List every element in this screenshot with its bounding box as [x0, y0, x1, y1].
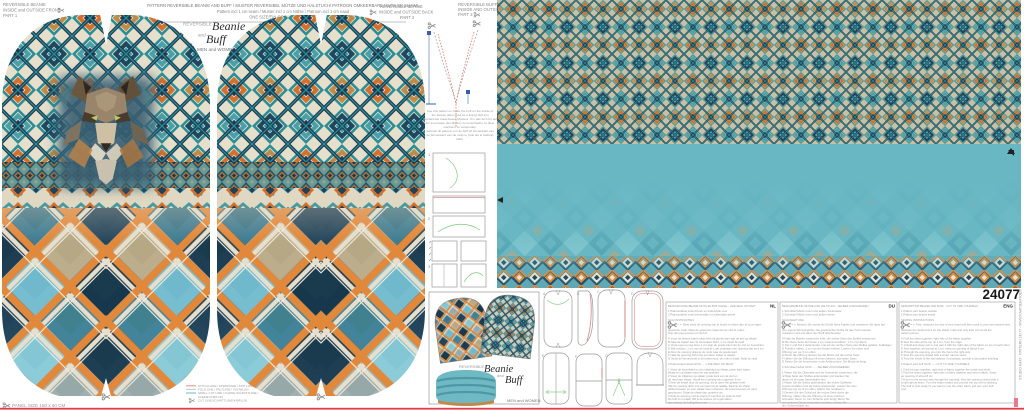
svg-text:and: and	[198, 33, 206, 38]
svg-text:Buff: Buff	[505, 375, 525, 386]
svg-text:2 Schnittteil Mütze innen und: 2 Schnittteil Mütze innen und außen hint…	[782, 312, 835, 316]
svg-text:DU: DU	[889, 304, 896, 309]
svg-text:REVERSIBLE BEANIE: REVERSIBLE BEANIE	[3, 2, 46, 7]
svg-text:Messen Sie zuerst die Größe Ih: Messen Sie zuerst die Größe Ihres Kopfes…	[797, 322, 885, 326]
svg-text:PART 2: PART 2	[400, 15, 415, 20]
svg-text:Beanie: Beanie	[212, 19, 246, 33]
svg-text:First, measure the size of you: First, measure the size of your head and…	[916, 322, 1011, 326]
svg-text:The buff is now ready! If you: The buff is now ready! If you want to us…	[901, 384, 994, 388]
svg-text:CUT LINE/SCHNITTLINIE/KNIPLIJN: CUT LINE/SCHNITTLINIE/KNIPLIJN	[198, 398, 247, 402]
svg-text:PANEL SIZE 150 x 60 CM: PANEL SIZE 150 x 60 CM	[12, 403, 66, 408]
svg-text:G Fold the inside of the hat: G Fold the inside of the hat inwards, fi…	[901, 356, 999, 360]
svg-text:tabrij.: tabrij.	[456, 137, 464, 141]
svg-text:dan draai je de buff gewoon om: dan draai je de buff gewoon om.	[668, 400, 708, 404]
svg-text:G Falten Sie die Innenmütze i: G Falten Sie die Innenmütze in die Außen…	[782, 360, 867, 364]
svg-text:3: 3	[428, 264, 431, 269]
svg-text:MEN and WOMEN: MEN and WOMEN	[197, 47, 236, 52]
svg-text:Pattern incl 1 cm seam / Muste: Pattern incl 1 cm seam / Muster incl 1 c…	[217, 9, 350, 14]
svg-text:2: 2	[428, 216, 431, 221]
svg-text:2 Patroondeel shawl SCIS - -: 2 Patroondeel shawl SCIS - - - HOE ZELF …	[668, 362, 734, 366]
svg-text:REVERSIBLE: REVERSIBLE	[459, 364, 484, 369]
svg-text:SEWING INSTRUCTIONS: SEWING INSTRUCTIONS	[901, 318, 934, 322]
svg-text:den Schal einfach um.: den Schal einfach um.	[782, 404, 810, 408]
svg-text:2 Pattern part buff SCIS - -: 2 Pattern part buff SCIS - - - CUT TO SI…	[901, 362, 970, 366]
svg-text:G Vouw de binnenmuts in de b: G Vouw de binnenmuts in de buitenmuts, d…	[668, 356, 758, 360]
svg-text:DESCRIPTION BEANIE AND BUFF -: DESCRIPTION BEANIE AND BUFF - CUT TO SIZ…	[901, 304, 979, 308]
svg-text:BESCHREIBUNG MÜTZE UND HALSTUC: BESCHREIBUNG MÜTZE UND HALSTUCH - SELBER…	[782, 304, 869, 308]
svg-text:24077: 24077	[982, 287, 1020, 302]
svg-text:2 Pattern part beanie insid: 2 Pattern part beanie inside	[901, 312, 936, 316]
svg-text:knip dan pas precies om stof a: knip dan pas precies om stof af.	[668, 331, 708, 335]
svg-text:Meet eerst de omvang van je ho: Meet eerst de omvang van je hoofd en tek…	[683, 322, 762, 326]
svg-text:and: and	[497, 373, 504, 378]
svg-text:NL: NL	[770, 304, 776, 309]
svg-text:over: over	[901, 387, 907, 391]
svg-text:Buff: Buff	[206, 32, 228, 46]
svg-text:STUDIO KAAT - PATTERN 24077 -: STUDIO KAAT - PATTERN 24077 - WWW.KAATJE…	[1019, 289, 1023, 380]
svg-text:PART 3: PART 3	[458, 12, 473, 17]
svg-text:MEN and WOMEN: MEN and WOMEN	[507, 398, 541, 403]
svg-text:1: 1	[428, 152, 431, 157]
svg-text:REVERSIBLE: REVERSIBLE	[183, 22, 212, 27]
svg-text:markieren und erst dann den St: markieren und erst dann den Stoff abschn…	[782, 331, 842, 335]
svg-text:PART 1: PART 1	[3, 13, 18, 18]
svg-text:2 Schnittteil Schal SCIS - -: 2 Schnittteil Schal SCIS - - - SELBER ZU…	[782, 365, 849, 369]
svg-text:ENG: ENG	[1003, 304, 1013, 309]
svg-text:BESCHRIJVING BEANIE MUTS EN BU: BESCHRIJVING BEANIE MUTS EN BUF SHAWL - …	[668, 304, 756, 308]
svg-text:NAAI INSTRUCTIES: NAAI INSTRUCTIES	[668, 318, 694, 322]
svg-text:2 Patroonddeel muts binnenzij: 2 Patroonddeel muts binnenzijde en buite…	[668, 312, 735, 316]
svg-text:PATTERN REVERSIBLE BEANIE AND: PATTERN REVERSIBLE BEANIE AND BUFF / MUS…	[147, 3, 420, 8]
svg-text:NÄHANLEITUNG: NÄHANLEITUNG	[782, 318, 804, 322]
svg-text:INSIDE and OUTSIDE BACK: INSIDE and OUTSIDE BACK	[379, 10, 434, 15]
svg-text:INSIDE and OUTSIDE FRONT: INSIDE and OUTSIDE FRONT	[3, 8, 61, 13]
svg-text:pattern pieces: pattern pieces	[901, 331, 919, 335]
svg-text:REVERSIBLE BEANIE: REVERSIBLE BEANIE	[380, 4, 423, 9]
svg-text:B: B	[577, 292, 580, 296]
